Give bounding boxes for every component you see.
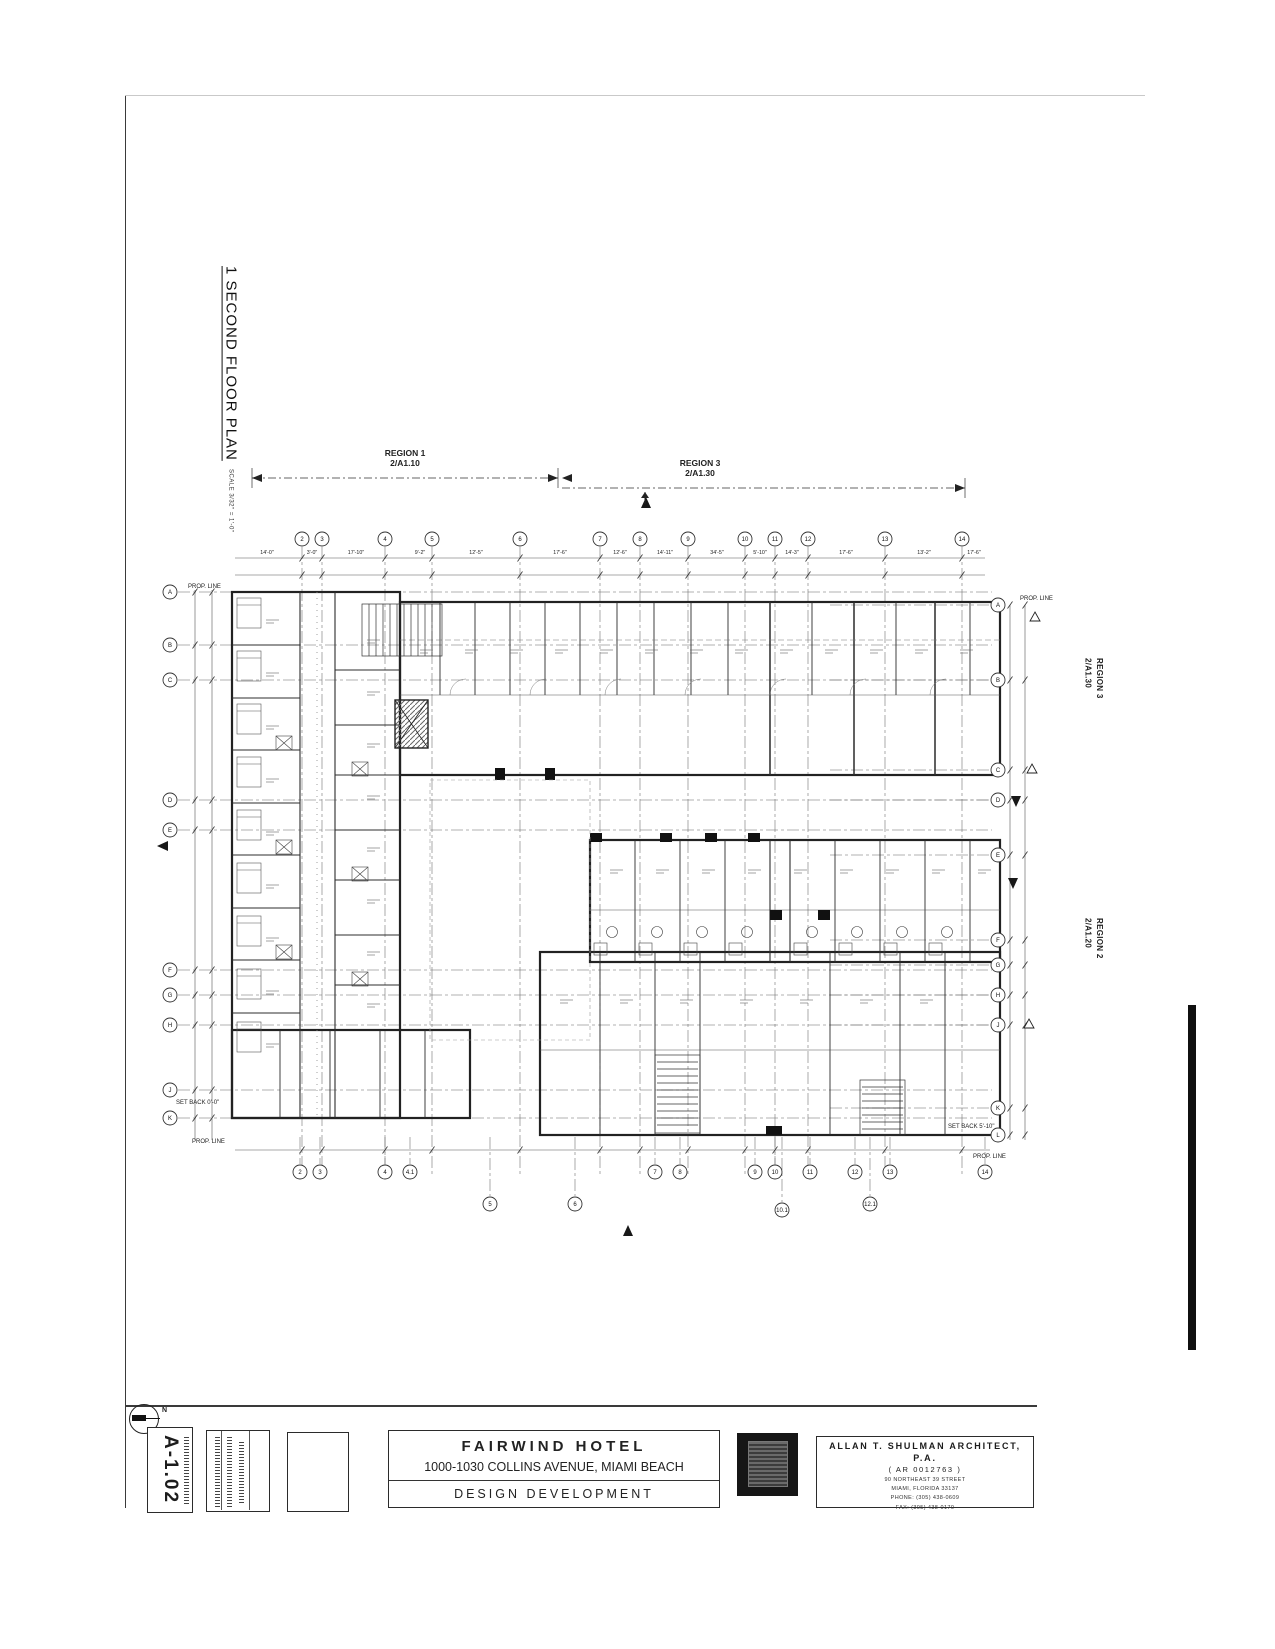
sheet-number-box: A-1.02 bbox=[147, 1427, 193, 1513]
region1-label: REGION 1 bbox=[385, 448, 426, 458]
svg-text:12: 12 bbox=[852, 1170, 859, 1176]
region2-right-label: REGION 2 2/A1.20 bbox=[1082, 918, 1105, 959]
region2-right-text: REGION 2 bbox=[1094, 918, 1106, 959]
svg-text:H: H bbox=[996, 993, 1000, 999]
svg-text:5'-10": 5'-10" bbox=[753, 550, 767, 556]
room-furniture-layer bbox=[237, 598, 991, 1052]
architect-address1: 90 NORTHEAST 39 STREET bbox=[821, 1477, 1029, 1484]
dimension-lines bbox=[195, 558, 1025, 1150]
svg-text:13'-2": 13'-2" bbox=[917, 550, 931, 556]
svg-text:H: H bbox=[168, 1023, 172, 1029]
svg-text:SET BACK 0'-0": SET BACK 0'-0" bbox=[176, 1100, 219, 1106]
svg-text:C: C bbox=[168, 678, 173, 684]
svg-text:10: 10 bbox=[742, 537, 749, 543]
project-name: FAIRWIND HOTEL bbox=[389, 1438, 719, 1455]
svg-text:E: E bbox=[996, 853, 1000, 859]
blank-box bbox=[287, 1432, 349, 1512]
svg-text:12'-6": 12'-6" bbox=[613, 550, 627, 556]
svg-text:13: 13 bbox=[882, 537, 889, 543]
svg-text:14'-0": 14'-0" bbox=[260, 550, 274, 556]
svg-text:F: F bbox=[168, 968, 172, 974]
title-block-top-rule bbox=[125, 1405, 1037, 1407]
stairs-icon-bottom-right bbox=[860, 1080, 905, 1135]
courtyard-outline bbox=[430, 780, 590, 1040]
drawing-title-text: 1 SECOND FLOOR PLAN bbox=[223, 266, 240, 461]
architect-box: ALLAN T. SHULMAN ARCHITECT, P.A. ( AR 00… bbox=[816, 1436, 1034, 1508]
bath-fixtures bbox=[276, 736, 953, 986]
revision-box bbox=[206, 1430, 270, 1512]
region3-right-ref: 2/A1.30 bbox=[1082, 658, 1094, 699]
svg-text:D: D bbox=[996, 798, 1001, 804]
annotation-layer: 234567891011121314ABCDEFGHJKABCDEFGHJKL2… bbox=[157, 497, 1053, 1236]
architect-phone: PHONE: (305) 438-0609 bbox=[821, 1495, 1029, 1502]
region-markers: REGION 1 2/A1.10 REGION 3 2/A1.30 bbox=[252, 448, 965, 498]
svg-text:4.1: 4.1 bbox=[406, 1170, 415, 1176]
svg-text:K: K bbox=[168, 1116, 172, 1122]
sheet-number: A-1.02 bbox=[159, 1435, 181, 1504]
svg-text:3'-0": 3'-0" bbox=[307, 550, 318, 556]
region3-right-label: REGION 3 2/A1.30 bbox=[1082, 658, 1105, 699]
region1-ref: 2/A1.10 bbox=[390, 458, 420, 468]
north-label: N bbox=[162, 1407, 167, 1414]
svg-text:17'-6": 17'-6" bbox=[553, 550, 567, 556]
svg-text:14'-3": 14'-3" bbox=[785, 550, 799, 556]
svg-text:F: F bbox=[996, 938, 1000, 944]
svg-text:11: 11 bbox=[772, 537, 779, 543]
svg-text:12.1: 12.1 bbox=[864, 1202, 876, 1208]
project-title-box: FAIRWIND HOTEL 1000-1030 COLLINS AVENUE,… bbox=[388, 1430, 720, 1508]
sheet-border-top bbox=[125, 95, 1145, 96]
svg-text:C: C bbox=[996, 768, 1001, 774]
svg-text:PROP. LINE: PROP. LINE bbox=[192, 1139, 225, 1145]
region3-right-text: REGION 3 bbox=[1094, 658, 1106, 699]
svg-text:11: 11 bbox=[807, 1170, 814, 1176]
svg-text:D: D bbox=[168, 798, 173, 804]
architect-stamp bbox=[737, 1433, 798, 1496]
region2-right-ref: 2/A1.20 bbox=[1082, 918, 1094, 959]
svg-text:PROP. LINE: PROP. LINE bbox=[973, 1154, 1006, 1160]
svg-text:14: 14 bbox=[959, 537, 966, 543]
svg-text:E: E bbox=[168, 828, 172, 834]
svg-text:10: 10 bbox=[772, 1170, 779, 1176]
region3-top-label: REGION 3 bbox=[680, 458, 721, 468]
svg-text:B: B bbox=[168, 643, 172, 649]
svg-text:34'-5": 34'-5" bbox=[710, 550, 724, 556]
stairs-icon-top bbox=[362, 604, 442, 656]
svg-text:PROP. LINE: PROP. LINE bbox=[1020, 596, 1053, 602]
svg-text:13: 13 bbox=[887, 1170, 894, 1176]
project-phase: DESIGN DEVELOPMENT bbox=[389, 1480, 719, 1501]
svg-text:A: A bbox=[168, 590, 172, 596]
architect-name: ALLAN T. SHULMAN ARCHITECT, P.A. bbox=[821, 1441, 1029, 1464]
svg-text:9'-2": 9'-2" bbox=[415, 550, 426, 556]
svg-text:17'-10": 17'-10" bbox=[348, 550, 365, 556]
project-address: 1000-1030 COLLINS AVENUE, MIAMI BEACH bbox=[389, 1460, 719, 1474]
svg-text:J: J bbox=[169, 1088, 172, 1094]
svg-text:10.1: 10.1 bbox=[776, 1208, 788, 1214]
elevator-icon bbox=[395, 700, 428, 748]
architect-license: ( AR 0012763 ) bbox=[821, 1465, 1029, 1475]
svg-text:A: A bbox=[996, 603, 1000, 609]
architect-address2: MIAMI, FLORIDA 33137 bbox=[821, 1486, 1029, 1493]
svg-text:17'-6": 17'-6" bbox=[839, 550, 853, 556]
svg-text:K: K bbox=[996, 1106, 1000, 1112]
floor-plan-canvas: REGION 1 2/A1.10 REGION 3 2/A1.30 bbox=[130, 440, 1130, 1250]
svg-text:G: G bbox=[996, 963, 1001, 969]
svg-text:J: J bbox=[997, 1023, 1000, 1029]
architect-fax: FAX: (305) 438-0170 bbox=[821, 1505, 1029, 1512]
sheet-border-left bbox=[125, 95, 126, 1508]
stairs-icon-bottom-left bbox=[655, 1055, 700, 1133]
svg-text:14: 14 bbox=[982, 1170, 989, 1176]
svg-text:14'-11": 14'-11" bbox=[657, 550, 673, 556]
svg-text:SET BACK 5'-10": SET BACK 5'-10" bbox=[948, 1124, 995, 1130]
region3-top-ref: 2/A1.30 bbox=[685, 468, 715, 478]
drawing-sheet: 1 SECOND FLOOR PLAN SCALE 3/32" = 1'-0" … bbox=[0, 0, 1275, 1649]
svg-text:17'-6": 17'-6" bbox=[967, 550, 981, 556]
svg-text:G: G bbox=[168, 993, 173, 999]
svg-text:12'-5": 12'-5" bbox=[469, 550, 483, 556]
scan-edge-bar bbox=[1188, 1005, 1196, 1350]
svg-text:PROP. LINE: PROP. LINE bbox=[188, 584, 221, 590]
svg-text:12: 12 bbox=[805, 537, 812, 543]
svg-text:B: B bbox=[996, 678, 1000, 684]
